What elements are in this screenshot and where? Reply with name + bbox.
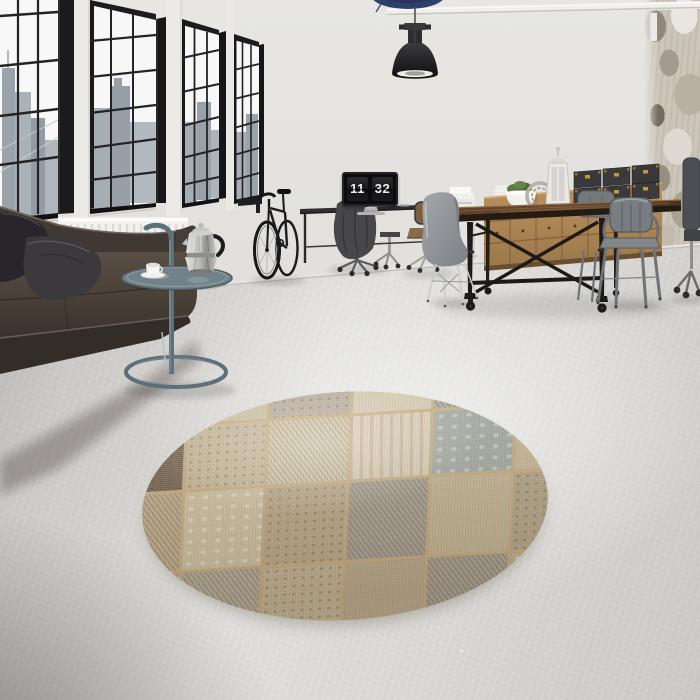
ceiling-pipe <box>387 1 700 41</box>
monitor-base <box>357 212 385 215</box>
flip-clock-minutes: 32 <box>372 177 393 201</box>
pendant-lamp <box>392 7 438 79</box>
monitor-flip-clock: 11 32 <box>342 172 398 206</box>
office-chair <box>374 232 401 269</box>
window-frame <box>58 0 74 214</box>
window-2 <box>90 0 166 216</box>
window-1 <box>0 0 74 227</box>
window-frame <box>259 44 264 196</box>
window-pier <box>226 0 234 210</box>
right-office-chair <box>671 158 700 304</box>
window-pier <box>74 0 90 224</box>
skyline-building <box>110 86 130 207</box>
skyline-building <box>92 108 110 209</box>
window-frame <box>219 31 226 199</box>
skyline-building <box>246 114 258 197</box>
scene-artwork <box>0 0 700 700</box>
window-wall <box>0 0 264 227</box>
window-pier <box>166 0 182 216</box>
bicycle <box>238 189 305 285</box>
lamp-shade <box>392 43 438 73</box>
loft-room-photo: 11 32 <box>0 0 700 700</box>
lantern <box>546 147 570 207</box>
skyline-building <box>211 130 219 198</box>
window-4 <box>234 0 264 205</box>
window-3 <box>182 0 226 210</box>
bike-saddle <box>277 189 291 194</box>
flip-clock-hours: 11 <box>347 177 368 201</box>
skyline-building <box>45 140 58 219</box>
skyline-building <box>235 132 246 200</box>
